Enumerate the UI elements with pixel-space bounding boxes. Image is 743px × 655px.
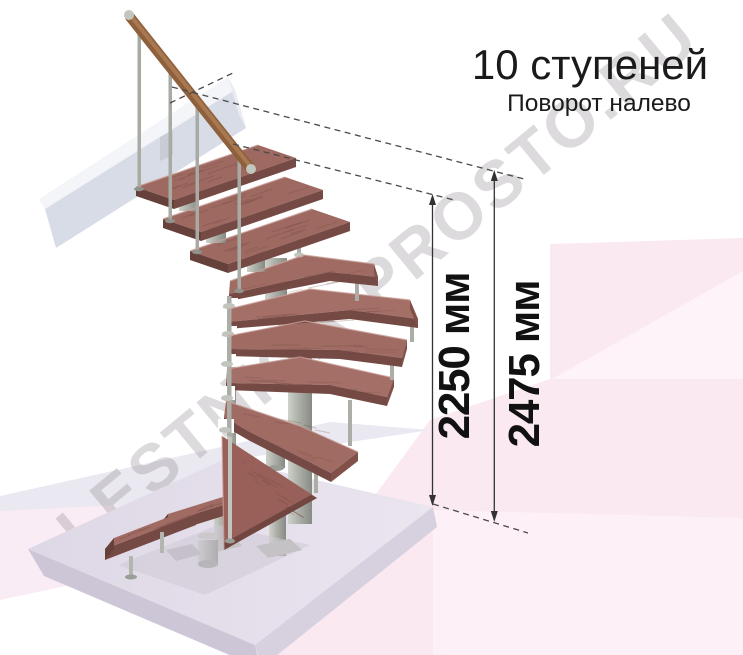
svg-text:10 ступеней: 10 ступеней [472, 41, 708, 88]
svg-text:2475 мм: 2475 мм [500, 281, 549, 448]
svg-text:Поворот налево: Поворот налево [507, 90, 691, 117]
svg-text:2250 мм: 2250 мм [430, 273, 479, 440]
